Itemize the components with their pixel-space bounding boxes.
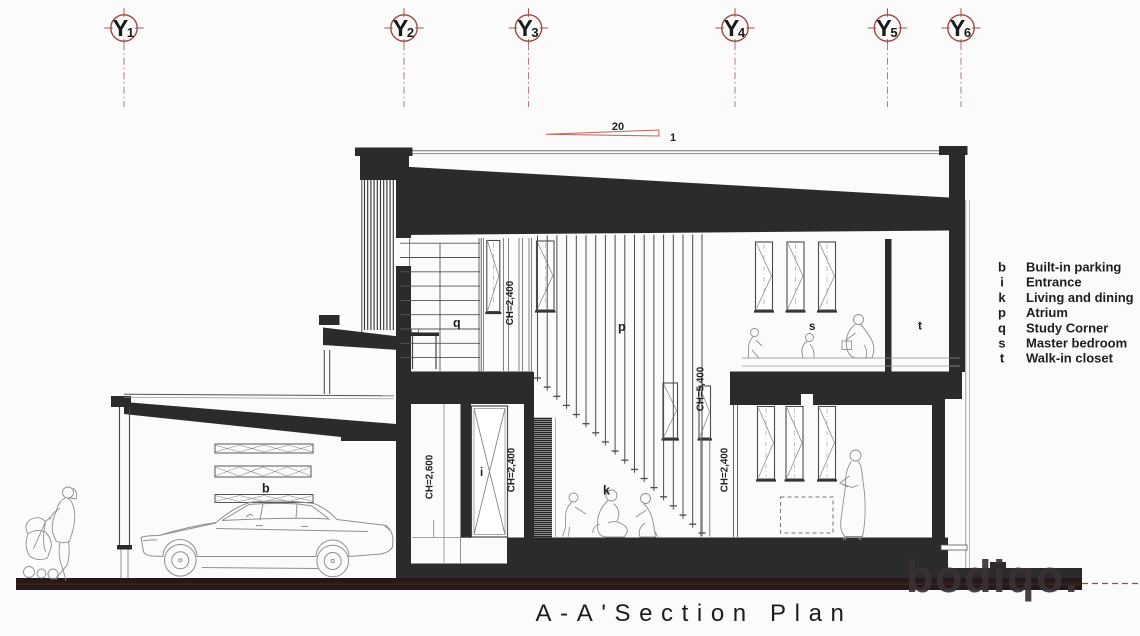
svg-text:Study Corner: Study Corner (1026, 320, 1108, 335)
svg-text:q: q (998, 320, 1006, 335)
svg-text:1: 1 (127, 25, 134, 40)
svg-text:Entrance: Entrance (1026, 275, 1082, 290)
svg-text:k: k (603, 484, 610, 498)
svg-text:CH=2,400: CH=2,400 (507, 447, 518, 492)
svg-text:Walk-in closet: Walk-in closet (1026, 351, 1114, 366)
svg-text:q: q (453, 316, 461, 330)
svg-text:bodiqo.: bodiqo. (906, 551, 1079, 602)
svg-text:CH=2,400: CH=2,400 (505, 280, 516, 325)
svg-text:s: s (809, 321, 815, 333)
svg-text:CH=2,600: CH=2,600 (425, 454, 436, 499)
svg-text:p: p (618, 320, 626, 334)
svg-text:t: t (1000, 351, 1005, 366)
svg-text:CH=2,400: CH=2,400 (720, 447, 731, 492)
svg-text:2: 2 (407, 25, 414, 40)
svg-text:5: 5 (890, 25, 897, 40)
svg-text:s: s (998, 336, 1005, 351)
svg-text:A-A'Section Plan: A-A'Section Plan (536, 600, 853, 627)
svg-text:b: b (262, 482, 270, 496)
svg-text:k: k (998, 290, 1006, 305)
svg-text:CH=5,400: CH=5,400 (696, 366, 707, 411)
svg-text:p: p (998, 305, 1006, 320)
svg-text:i: i (480, 467, 483, 479)
svg-text:i: i (1000, 275, 1004, 290)
svg-text:6: 6 (964, 25, 971, 40)
svg-text:b: b (998, 260, 1006, 275)
svg-text:Atrium: Atrium (1026, 305, 1068, 320)
svg-text:t: t (918, 319, 922, 333)
svg-text:Built-in parking: Built-in parking (1026, 260, 1121, 275)
svg-text:3: 3 (531, 25, 538, 40)
svg-text:4: 4 (738, 25, 746, 40)
svg-text:Living and dining: Living and dining (1026, 290, 1134, 305)
svg-text:20: 20 (612, 121, 624, 133)
svg-text:1: 1 (670, 132, 676, 144)
svg-text:Master bedroom: Master bedroom (1026, 336, 1127, 351)
